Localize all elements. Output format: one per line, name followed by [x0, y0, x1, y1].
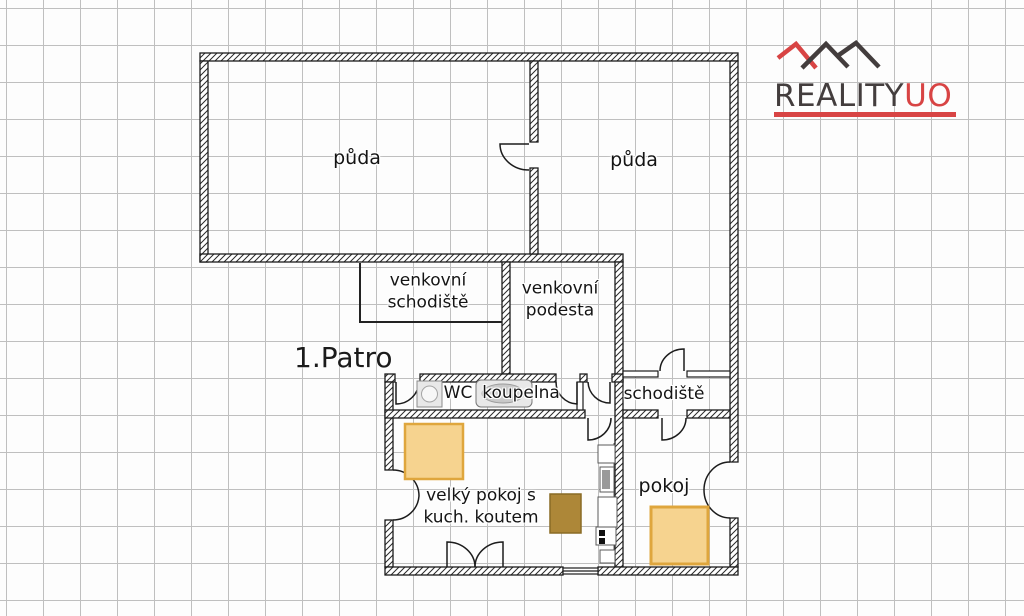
logo-wordmark: REALITYUO — [774, 78, 952, 114]
double-door-icon — [704, 462, 730, 490]
room-label-wc: WC — [444, 383, 473, 405]
door-swing-icon — [500, 144, 529, 170]
burner-icon — [599, 538, 605, 544]
kitchen-counter-icon — [596, 443, 617, 563]
room-label-bathroom: koupelna — [482, 383, 560, 405]
logo-underline — [774, 112, 956, 117]
brand-logo: REALITYUO — [772, 34, 972, 126]
door-swing-icon — [396, 382, 419, 404]
logo-suffix-text: UO — [904, 78, 952, 114]
door-swing-icon — [662, 418, 686, 440]
room-label-staircase: schodiště — [624, 384, 705, 406]
table-icon — [550, 494, 581, 533]
floor-title: 1.Patro — [294, 341, 393, 374]
burner-icon — [599, 530, 605, 536]
room-label-bedroom: pokoj — [639, 474, 690, 498]
floorplan-page: půda půda venkovní schodiště venkovní po… — [0, 0, 1024, 616]
bed-icon — [651, 507, 708, 564]
logo-brand-text: REALITY — [774, 78, 904, 114]
double-door-icon — [447, 542, 475, 567]
door-swing-icon — [588, 382, 610, 403]
logo-roof-icon — [772, 34, 972, 78]
room-label-outdoor-staircase: venkovní schodiště — [388, 270, 469, 314]
room-label-attic-right: půda — [610, 148, 658, 172]
door-swing-icon — [660, 349, 684, 371]
double-door-icon — [393, 496, 419, 520]
room-label-attic-left: půda — [333, 146, 381, 170]
double-door-icon — [475, 542, 503, 567]
bed-icon — [405, 424, 463, 479]
washing-machine-drum-icon — [422, 386, 438, 402]
door-swing-icon — [588, 418, 611, 440]
room-label-living-room: velký pokoj s kuch. koutem — [423, 485, 538, 529]
room-label-outdoor-landing: venkovní podesta — [522, 278, 599, 322]
